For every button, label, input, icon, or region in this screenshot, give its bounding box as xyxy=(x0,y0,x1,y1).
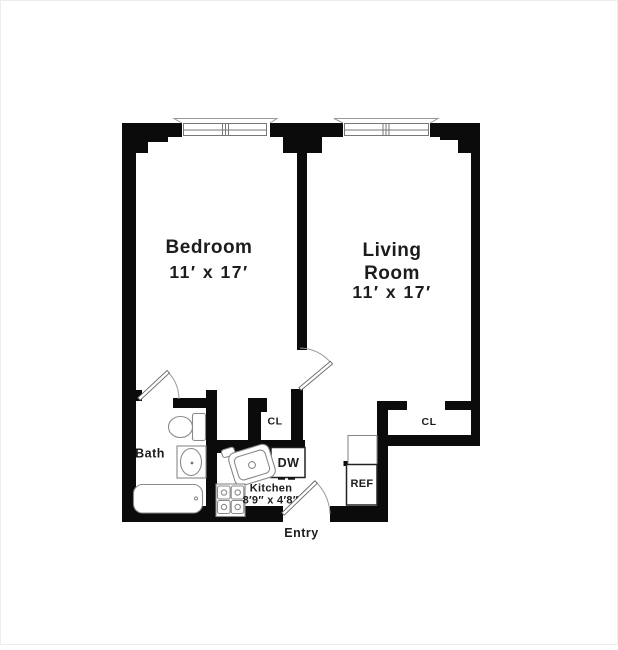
entry-door-swing-arc xyxy=(316,482,330,514)
living-room-dimensions: 11′ x 17′ xyxy=(352,282,431,302)
living-room-label-line1: Living xyxy=(363,240,422,261)
refrigerator-label: REF xyxy=(351,478,374,490)
stove xyxy=(216,484,245,517)
closet-right-label: CL xyxy=(422,416,437,428)
bedroom-label: Bedroom xyxy=(166,237,253,258)
bedroom-living-door-leaf xyxy=(299,361,333,390)
right-closet-top-wall-left xyxy=(377,401,407,410)
entry-right-wall xyxy=(377,401,388,522)
bedroom-window xyxy=(174,119,277,139)
bath-fixtures xyxy=(134,414,207,514)
left-exterior-wall xyxy=(122,123,136,522)
bath-right-wall xyxy=(206,390,217,522)
floor-plan-drawing: Bedroom 11′ x 17′ Living Room 11′ x 17′ … xyxy=(0,0,618,645)
bath-sink-drain xyxy=(191,462,194,465)
floor-plan: Bedroom 11′ x 17′ Living Room 11′ x 17′ … xyxy=(0,0,618,645)
bath-door xyxy=(138,370,179,400)
bath-door-swing-arc xyxy=(168,372,179,399)
living-room-window xyxy=(334,119,438,139)
bathtub-drain xyxy=(194,497,197,500)
bath-sink-basin xyxy=(181,449,202,476)
closet-left-label: CL xyxy=(268,416,283,428)
burner-3-ring xyxy=(221,504,226,509)
bath-door-leaf xyxy=(138,370,170,400)
right-exterior-wall xyxy=(471,123,480,446)
left-closet-wall-lower xyxy=(248,412,261,440)
burner-4-ring xyxy=(235,504,240,509)
bath-label: Bath xyxy=(135,447,165,461)
divider-wall-stub xyxy=(291,389,303,440)
kitchen-label: Kitchen xyxy=(250,483,292,495)
bedroom-living-door xyxy=(299,348,333,390)
living-room-label-line2: Room xyxy=(364,263,420,284)
entry-label: Entry xyxy=(284,526,318,540)
bedroom-living-door-swing-arc xyxy=(300,348,331,363)
bathtub xyxy=(134,485,203,514)
right-closet-top-wall-right xyxy=(445,401,480,410)
kitchen-dimensions: 8′9″ x 4′8″ xyxy=(243,495,299,507)
burner-2-ring xyxy=(235,490,240,495)
dishwasher-label: DW xyxy=(278,456,300,470)
bedroom-dimensions: 11′ x 17′ xyxy=(169,262,248,282)
toilet-bowl xyxy=(169,417,193,438)
left-closet-wall-upper xyxy=(248,398,267,412)
burner-1-ring xyxy=(221,490,226,495)
toilet-tank xyxy=(193,414,206,441)
right-closet-bottom-wall xyxy=(377,435,480,446)
cabinet-above-ref xyxy=(348,436,377,466)
bedroom-living-divider-wall xyxy=(297,134,307,350)
